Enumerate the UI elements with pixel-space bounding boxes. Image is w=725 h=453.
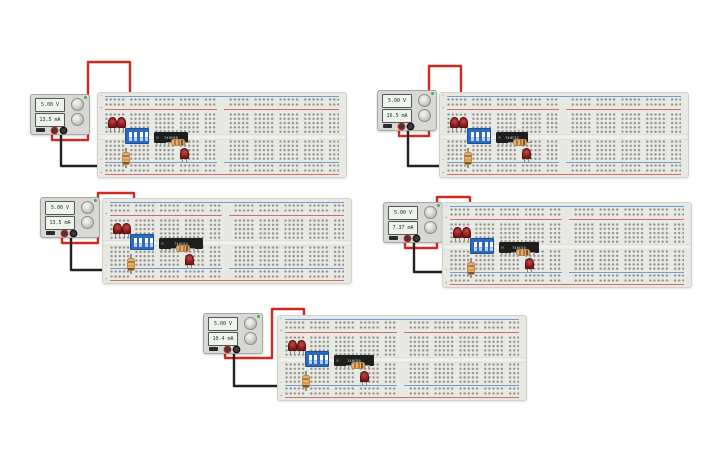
current-knob[interactable] xyxy=(244,332,257,345)
power-supply[interactable]: 5.00 V 13.5 mA xyxy=(30,94,90,135)
current-knob[interactable] xyxy=(71,113,84,126)
led-leg xyxy=(123,128,124,131)
voltage-knob[interactable] xyxy=(424,206,437,219)
rail-plus-label: + xyxy=(280,329,282,333)
led-bulb xyxy=(522,148,531,159)
led-leg xyxy=(524,159,525,162)
current-value: 13.5 mA xyxy=(49,220,70,226)
rail-plus-label: + xyxy=(280,394,282,398)
negative-terminal[interactable] xyxy=(408,124,413,129)
resistor-vertical[interactable] xyxy=(127,254,135,274)
resistor-band xyxy=(303,385,309,387)
dip-switch[interactable] xyxy=(305,351,329,367)
positive-terminal[interactable] xyxy=(399,124,404,129)
resistor-band xyxy=(520,140,522,145)
voltage-display: 5.00 V xyxy=(208,317,238,331)
led-leg xyxy=(191,265,192,268)
resistor-body xyxy=(171,139,185,146)
current-knob[interactable] xyxy=(418,109,431,122)
led-leg xyxy=(456,128,457,131)
resistor-band xyxy=(465,155,471,157)
led-leg xyxy=(128,234,129,237)
rail-minus-label: − xyxy=(105,264,107,268)
resistor-band xyxy=(123,159,129,161)
resistor-vertical[interactable] xyxy=(464,148,472,168)
ic-notch xyxy=(156,136,160,140)
bottom-rail-positive-line xyxy=(447,174,681,175)
current-value: 7.37 mA xyxy=(392,225,413,231)
dip-toggle-2[interactable] xyxy=(314,355,317,364)
resistor-band xyxy=(465,162,471,164)
voltage-knob[interactable] xyxy=(418,94,431,107)
resistor-body xyxy=(464,152,472,165)
resistor-band xyxy=(178,140,180,145)
voltage-value: 5.00 V xyxy=(394,210,412,216)
power-indicator-led xyxy=(84,96,87,99)
input-led-1[interactable] xyxy=(288,340,297,354)
breadboard[interactable]: − + − + 74HC00 xyxy=(442,202,692,288)
rail-minus-label: − xyxy=(105,200,107,204)
resistor-band xyxy=(519,250,521,255)
resistor-horizontal[interactable] xyxy=(346,362,370,369)
power-indicator-led xyxy=(94,199,97,202)
current-value: 16.5 mA xyxy=(386,113,407,119)
resistor-band xyxy=(179,246,181,251)
voltage-display: 5.00 V xyxy=(382,94,412,108)
led-leg xyxy=(362,382,363,385)
power-supply[interactable]: 5.00 V 16.5 mA xyxy=(377,90,437,131)
resistor-band xyxy=(523,250,525,255)
rail-minus-label: − xyxy=(442,158,444,162)
resistor-horizontal[interactable] xyxy=(166,139,190,146)
breadboard[interactable]: − + − + 74HC08 xyxy=(97,92,347,178)
rail-minus-label: − xyxy=(445,268,447,272)
positive-terminal[interactable] xyxy=(225,347,230,352)
resistor-band xyxy=(468,272,474,274)
dip-toggle-2[interactable] xyxy=(476,132,479,141)
dip-toggle-3[interactable] xyxy=(485,242,488,251)
rail-minus-label: − xyxy=(280,317,282,321)
voltage-display: 5.00 V xyxy=(35,98,65,112)
dip-switch[interactable] xyxy=(125,128,149,144)
resistor-band xyxy=(468,269,474,271)
resistor-band xyxy=(465,159,471,161)
led-leg xyxy=(110,128,111,131)
resistor-band xyxy=(123,162,129,164)
resistor-band xyxy=(183,246,185,251)
bottom-rail-positive-line xyxy=(450,284,684,285)
input-led-1[interactable] xyxy=(450,117,459,131)
led-bulb xyxy=(450,117,459,128)
led-bulb xyxy=(122,223,131,234)
rail-minus-label: − xyxy=(442,94,444,98)
led-leg xyxy=(182,159,183,162)
rail-minus-label: − xyxy=(445,204,447,208)
current-display: 7.37 mA xyxy=(388,221,418,235)
resistor-horizontal[interactable] xyxy=(508,139,532,146)
resistor-band xyxy=(303,382,309,384)
voltage-value: 5.00 V xyxy=(41,102,59,108)
resistor-band xyxy=(523,140,525,145)
ic-notch xyxy=(336,359,340,363)
negative-terminal[interactable] xyxy=(61,128,66,133)
output-led[interactable] xyxy=(185,254,194,268)
dip-toggle-3[interactable] xyxy=(140,132,143,141)
dip-toggle-4[interactable] xyxy=(325,355,328,364)
dip-toggle-1[interactable] xyxy=(309,355,312,364)
voltage-value: 5.00 V xyxy=(388,98,406,104)
dip-toggle-2[interactable] xyxy=(139,238,142,247)
resistor-horizontal[interactable] xyxy=(511,249,535,256)
resistor-band xyxy=(174,140,176,145)
led-bulb xyxy=(108,117,117,128)
dip-toggle-4[interactable] xyxy=(150,238,153,247)
input-led-1[interactable] xyxy=(108,117,117,131)
power-switch[interactable] xyxy=(46,231,55,235)
dip-toggle-1[interactable] xyxy=(134,238,137,247)
circuit-canvas: 5.00 V 13.5 mA − + − + xyxy=(0,0,725,453)
breadboard[interactable]: − + − + 74HC86 xyxy=(277,315,527,401)
rail-plus-label: + xyxy=(442,106,444,110)
led-bulb xyxy=(113,223,122,234)
rail-plus-label: + xyxy=(100,106,102,110)
current-value: 10.4 mA xyxy=(212,336,233,342)
dip-toggle-1[interactable] xyxy=(129,132,132,141)
resistor-band xyxy=(181,140,183,145)
current-display: 13.5 mA xyxy=(35,113,65,127)
dip-toggle-1[interactable] xyxy=(474,242,477,251)
current-value: 13.5 mA xyxy=(39,117,60,123)
power-supply[interactable]: 5.00 V 7.37 mA xyxy=(383,202,443,243)
resistor-body xyxy=(122,152,130,165)
led-bulb xyxy=(117,117,126,128)
positive-terminal[interactable] xyxy=(405,236,410,241)
resistor-band xyxy=(128,268,134,270)
rail-plus-label: + xyxy=(445,216,447,220)
dip-switch[interactable] xyxy=(130,234,154,250)
breadboard[interactable]: − + − + 74HC04 xyxy=(102,198,352,284)
rail-plus-label: + xyxy=(100,171,102,175)
output-led[interactable] xyxy=(525,258,534,272)
bottom-rail-positive-line xyxy=(285,397,519,398)
led-leg xyxy=(119,128,120,131)
voltage-knob[interactable] xyxy=(81,201,94,214)
voltage-value: 5.00 V xyxy=(51,205,69,211)
voltage-knob[interactable] xyxy=(244,317,257,330)
resistor-vertical[interactable] xyxy=(302,371,310,391)
led-leg xyxy=(187,265,188,268)
current-display: 10.4 mA xyxy=(208,332,238,346)
led-bulb xyxy=(525,258,534,269)
led-bulb xyxy=(297,340,306,351)
resistor-band xyxy=(123,155,129,157)
resistor-body xyxy=(467,262,475,275)
dip-toggle-2[interactable] xyxy=(134,132,137,141)
positive-terminal[interactable] xyxy=(52,128,57,133)
led-leg xyxy=(452,128,453,131)
resistor-band xyxy=(361,363,363,368)
led-leg xyxy=(294,351,295,354)
led-leg xyxy=(124,234,125,237)
rail-plus-label: + xyxy=(445,281,447,285)
led-leg xyxy=(527,269,528,272)
current-knob[interactable] xyxy=(424,221,437,234)
current-display: 13.5 mA xyxy=(45,216,75,230)
voltage-display: 5.00 V xyxy=(45,201,75,215)
power-indicator-led xyxy=(431,92,434,95)
power-supply[interactable]: 5.00 V 13.5 mA xyxy=(40,197,100,238)
resistor-band xyxy=(186,246,188,251)
led-bulb xyxy=(360,371,369,382)
negative-terminal[interactable] xyxy=(71,231,76,236)
led-bulb xyxy=(185,254,194,265)
resistor-band xyxy=(526,250,528,255)
dip-toggle-1[interactable] xyxy=(471,132,474,141)
input-led-1[interactable] xyxy=(113,223,122,237)
bottom-rail-positive-line xyxy=(110,280,344,281)
led-leg xyxy=(303,351,304,354)
ic-notch xyxy=(161,242,165,246)
power-switch[interactable] xyxy=(389,236,398,240)
resistor-band xyxy=(303,378,309,380)
dip-toggle-3[interactable] xyxy=(320,355,323,364)
power-supply[interactable]: 5.00 V 10.4 mA xyxy=(203,313,263,354)
resistor-vertical[interactable] xyxy=(467,258,475,278)
led-leg xyxy=(464,238,465,241)
resistor-band xyxy=(128,265,134,267)
current-knob[interactable] xyxy=(81,216,94,229)
led-leg xyxy=(115,234,116,237)
ic-notch xyxy=(498,136,502,140)
negative-terminal[interactable] xyxy=(234,347,239,352)
resistor-band xyxy=(358,363,360,368)
led-leg xyxy=(531,269,532,272)
resistor-band xyxy=(468,265,474,267)
bottom-rail-positive-line xyxy=(105,174,339,175)
led-bulb xyxy=(453,227,462,238)
rail-plus-label: + xyxy=(105,212,107,216)
dip-toggle-3[interactable] xyxy=(482,132,485,141)
rail-minus-label: − xyxy=(100,94,102,98)
dip-toggle-4[interactable] xyxy=(145,132,148,141)
led-leg xyxy=(299,351,300,354)
led-leg xyxy=(528,159,529,162)
voltage-value: 5.00 V xyxy=(214,321,232,327)
led-leg xyxy=(366,382,367,385)
power-indicator-led xyxy=(257,315,260,318)
output-led[interactable] xyxy=(522,148,531,162)
positive-terminal[interactable] xyxy=(62,231,67,236)
led-bulb xyxy=(288,340,297,351)
led-leg xyxy=(119,234,120,237)
rail-plus-label: + xyxy=(442,171,444,175)
resistor-body xyxy=(302,375,310,388)
dip-toggle-3[interactable] xyxy=(145,238,148,247)
negative-terminal[interactable] xyxy=(414,236,419,241)
resistor-body xyxy=(176,245,190,252)
resistor-horizontal[interactable] xyxy=(171,245,195,252)
input-led-1[interactable] xyxy=(453,227,462,241)
resistor-band xyxy=(516,140,518,145)
output-led[interactable] xyxy=(180,148,189,162)
voltage-display: 5.00 V xyxy=(388,206,418,220)
resistor-body xyxy=(127,258,135,271)
rail-minus-label: − xyxy=(280,381,282,385)
led-leg xyxy=(290,351,291,354)
power-switch[interactable] xyxy=(209,347,218,351)
resistor-band xyxy=(128,261,134,263)
power-indicator-led xyxy=(437,204,440,207)
led-leg xyxy=(459,238,460,241)
dip-toggle-4[interactable] xyxy=(490,242,493,251)
led-bulb xyxy=(462,227,471,238)
resistor-band xyxy=(354,363,356,368)
dip-toggle-4[interactable] xyxy=(487,132,490,141)
rail-minus-label: − xyxy=(100,158,102,162)
dip-switch[interactable] xyxy=(470,238,494,254)
resistor-vertical[interactable] xyxy=(122,148,130,168)
power-switch[interactable] xyxy=(383,124,392,128)
led-bulb xyxy=(180,148,189,159)
led-leg xyxy=(461,128,462,131)
resistor-body xyxy=(513,139,527,146)
led-leg xyxy=(465,128,466,131)
dip-toggle-2[interactable] xyxy=(479,242,482,251)
dip-switch[interactable] xyxy=(467,128,491,144)
current-display: 16.5 mA xyxy=(382,109,412,123)
resistor-body xyxy=(351,362,365,369)
led-leg xyxy=(468,238,469,241)
breadboard[interactable]: − + − + 74HC32 xyxy=(439,92,689,178)
resistor-body xyxy=(516,249,530,256)
ic-notch xyxy=(501,246,505,250)
led-leg xyxy=(114,128,115,131)
output-led[interactable] xyxy=(360,371,369,385)
led-leg xyxy=(455,238,456,241)
power-switch[interactable] xyxy=(36,128,45,132)
led-leg xyxy=(186,159,187,162)
led-bulb xyxy=(459,117,468,128)
voltage-knob[interactable] xyxy=(71,98,84,111)
rail-plus-label: + xyxy=(105,277,107,281)
